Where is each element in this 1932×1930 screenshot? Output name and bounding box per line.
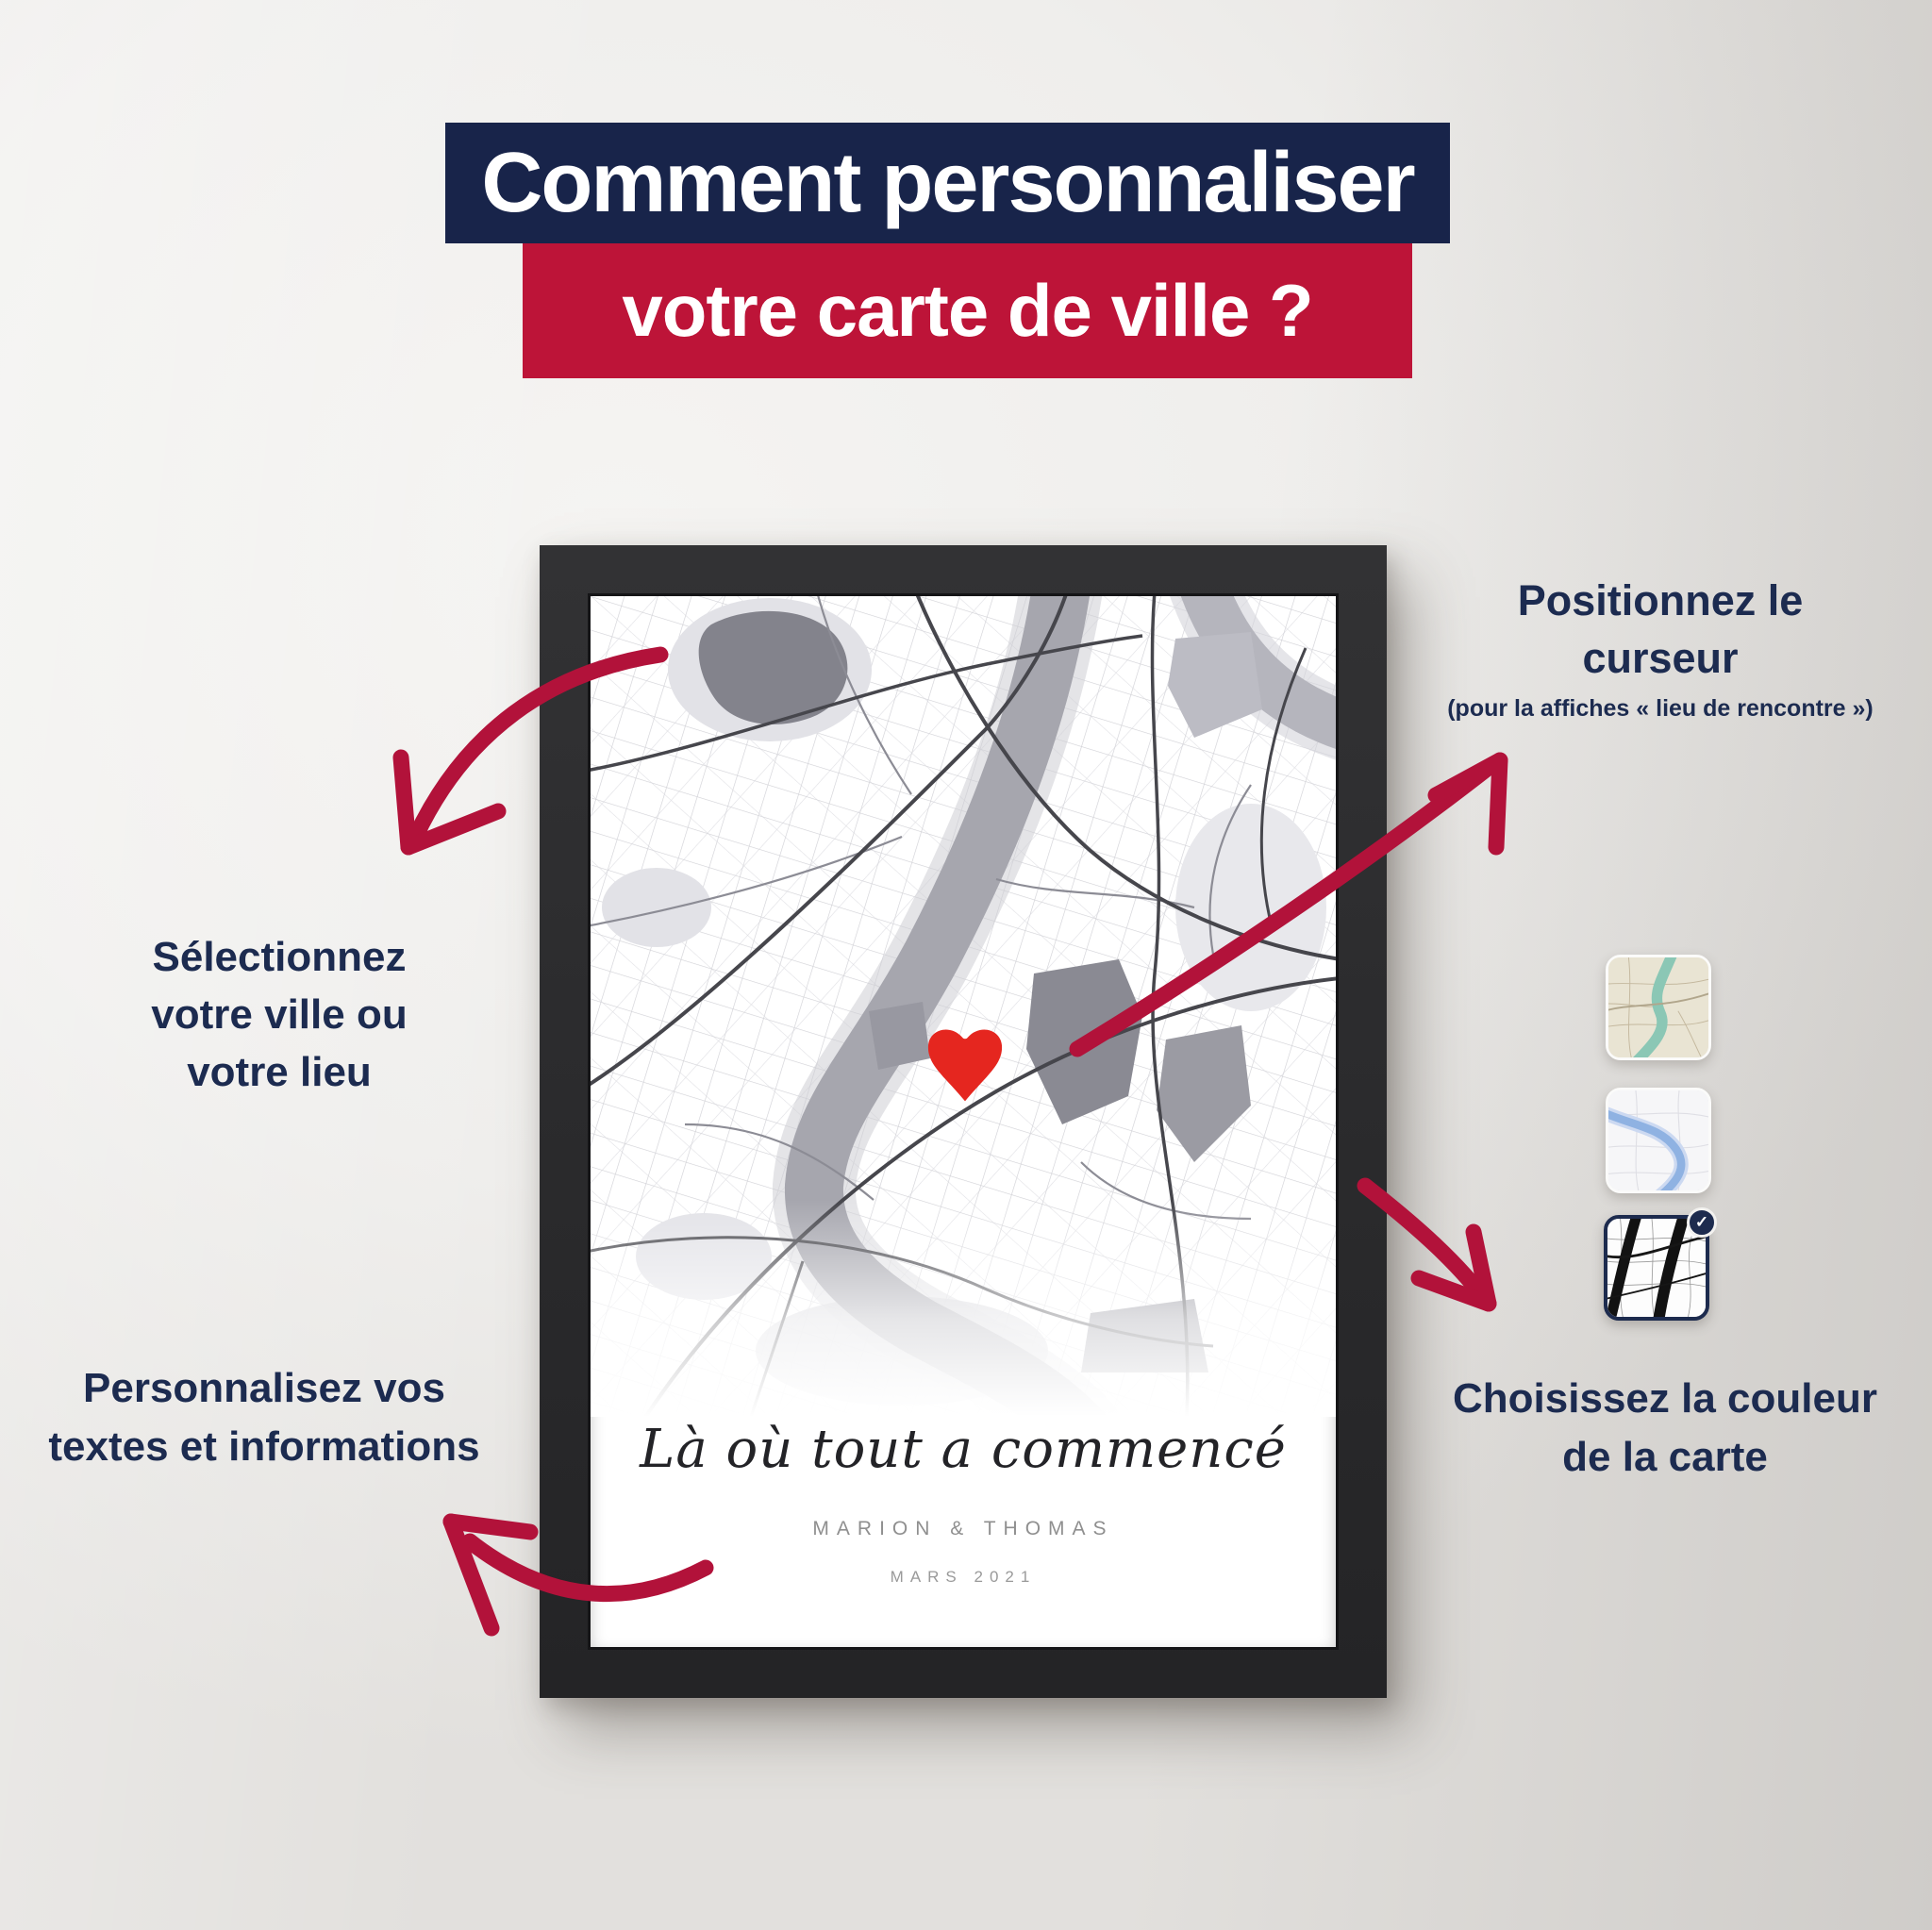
annotation-position-cursor-note: (pour la affiches « lieu de rencontre ») xyxy=(1415,692,1906,724)
title-banner-secondary: votre carte de ville ? xyxy=(523,243,1412,378)
light-blue-map-thumbnail xyxy=(1608,1090,1708,1190)
annotation-personalize-line2: textes et informations xyxy=(9,1418,519,1476)
title-line-1: Comment personnaliser xyxy=(481,135,1413,232)
annotation-position-cursor-line2: curseur xyxy=(1415,629,1906,687)
poster-date: MARS 2021 xyxy=(591,1568,1336,1587)
poster: Là où tout a commencé MARION & THOMAS MA… xyxy=(591,596,1336,1647)
map-style-option-vintage[interactable] xyxy=(1606,955,1711,1060)
vintage-map-thumbnail xyxy=(1608,957,1708,1057)
annotation-position-cursor: Positionnez le curseur (pour la affiches… xyxy=(1415,572,1906,724)
map-style-option-black-white[interactable]: ✓ xyxy=(1604,1215,1709,1321)
poster-frame: Là où tout a commencé MARION & THOMAS MA… xyxy=(540,545,1387,1698)
map-style-option-light-blue[interactable] xyxy=(1606,1088,1711,1193)
selected-check-badge: ✓ xyxy=(1687,1207,1717,1238)
poster-script-title: Là où tout a commencé xyxy=(591,1419,1336,1480)
annotation-personalize-line1: Personnalisez vos xyxy=(9,1359,519,1418)
annotation-choose-color: Choisissez la couleur de la carte xyxy=(1415,1370,1915,1487)
annotation-select-city-line2: votre ville ou xyxy=(109,986,449,1043)
check-icon: ✓ xyxy=(1695,1213,1708,1232)
annotation-position-cursor-line1: Positionnez le xyxy=(1415,572,1906,629)
title-line-2: votre carte de ville ? xyxy=(622,268,1312,354)
title-banner-primary: Comment personnaliser xyxy=(445,123,1450,243)
annotation-select-city-line3: votre lieu xyxy=(109,1043,449,1101)
annotation-choose-color-line2: de la carte xyxy=(1415,1428,1915,1487)
city-map xyxy=(591,596,1336,1417)
annotation-select-city-line1: Sélectionnez xyxy=(109,928,449,986)
poster-names: MARION & THOMAS xyxy=(591,1518,1336,1540)
annotation-personalize-texts: Personnalisez vos textes et informations xyxy=(9,1359,519,1476)
map-fade xyxy=(591,1200,1336,1417)
annotation-select-city: Sélectionnez votre ville ou votre lieu xyxy=(109,928,449,1101)
promo-infographic: Comment personnaliser votre carte de vil… xyxy=(0,0,1932,1930)
annotation-choose-color-line1: Choisissez la couleur xyxy=(1415,1370,1915,1428)
